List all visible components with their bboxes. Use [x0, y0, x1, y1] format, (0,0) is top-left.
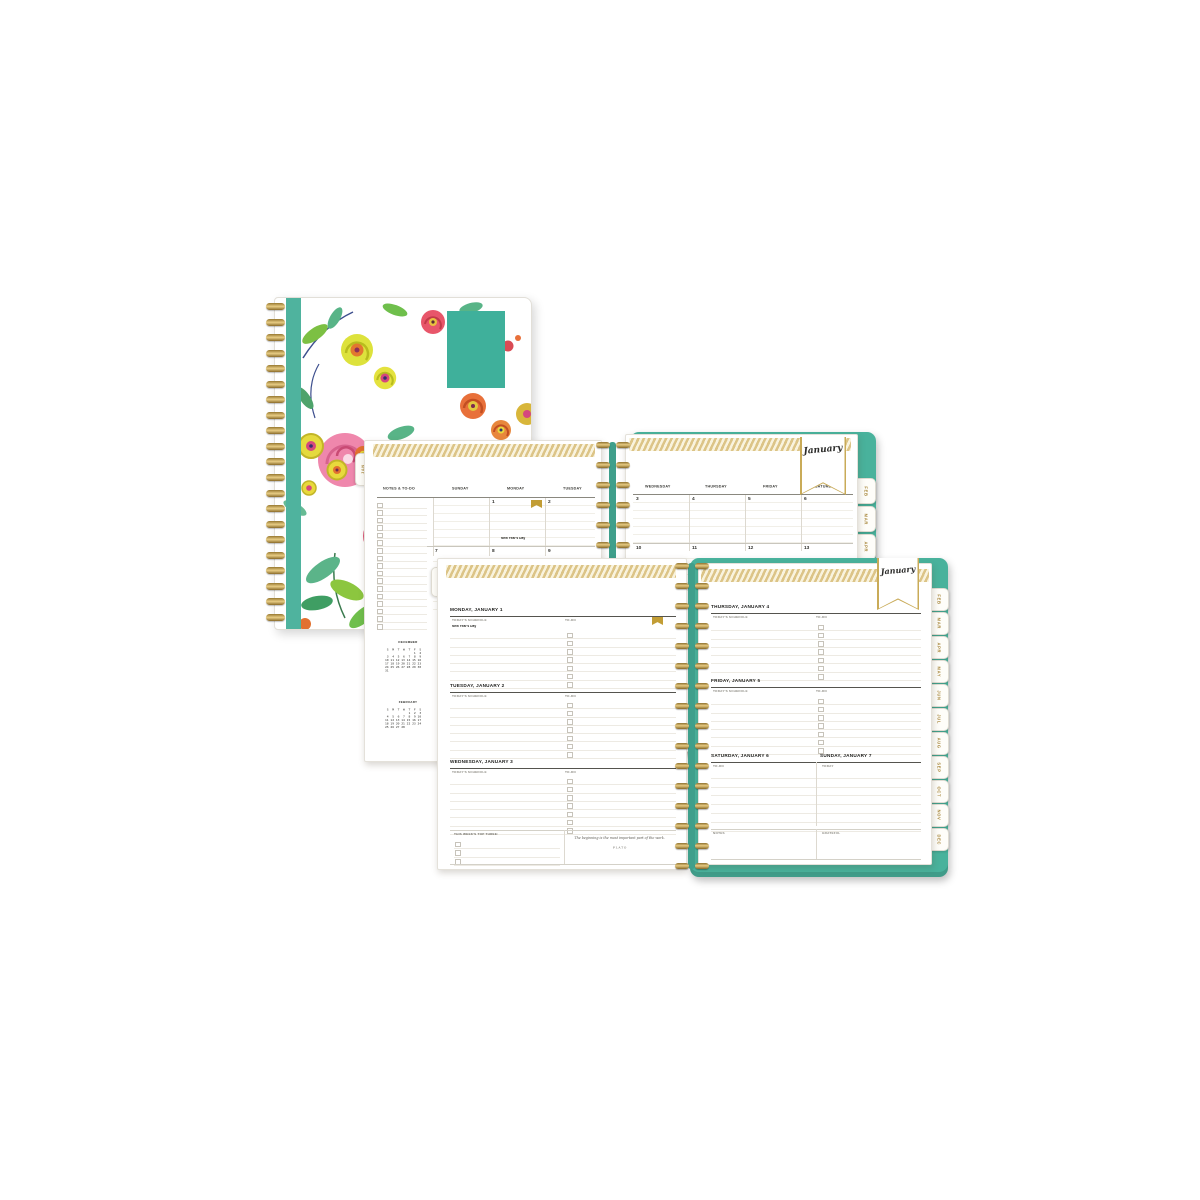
- todo-checkbox-row: [450, 631, 676, 639]
- todo-checkbox-row: [711, 738, 921, 746]
- todo-checkbox-row: [711, 697, 921, 705]
- schedule-label: TODAY'S SCHEDULE: [713, 690, 748, 693]
- date-cell: 3: [636, 497, 639, 502]
- todo-checkbox-row: [450, 818, 676, 826]
- mini-calendar-title: FEBRUARY: [385, 701, 431, 704]
- cover-spiral-binding: [264, 303, 286, 621]
- spiral-coil: [675, 743, 709, 749]
- todo-checkbox-row: [711, 664, 921, 672]
- quote-author: PLATO: [568, 846, 672, 850]
- todo-label: TO-DO: [816, 690, 827, 693]
- todo-checkbox-row: [454, 840, 560, 849]
- day-rule: [450, 616, 676, 617]
- todo-checkbox-row: [377, 592, 427, 600]
- todo-checkbox-row: [450, 639, 676, 647]
- spiral-coil: [675, 803, 709, 809]
- todo-checkbox-row: [711, 730, 921, 738]
- grid-line: [545, 498, 546, 556]
- todo-checkbox-row: [711, 623, 921, 631]
- spiral-coil: [596, 462, 630, 468]
- grid-line: [489, 498, 490, 556]
- todo-checkbox-row: [377, 607, 427, 615]
- todo-checkbox-row: [450, 701, 676, 709]
- todo-checkbox-row: [450, 742, 676, 750]
- day-title-saturday: SATURDAY, JANUARY 6: [711, 754, 769, 759]
- spiral-ring: [266, 552, 285, 559]
- spiral-ring: [266, 396, 285, 403]
- spiral-ring: [266, 381, 285, 388]
- month-tab-label: MAY: [935, 666, 939, 677]
- date-cell: 6: [804, 497, 807, 502]
- day-title-tuesday: TUESDAY, JANUARY 2: [450, 684, 505, 689]
- day-rows: [711, 623, 921, 681]
- todo-checkbox-row: [377, 585, 427, 593]
- day-rows: [450, 701, 676, 759]
- spiral-coil: [596, 482, 630, 488]
- holiday-label: New Year's Day: [501, 537, 525, 540]
- todo-checkbox-row: [711, 656, 921, 664]
- todo-checkbox-row: [450, 709, 676, 717]
- mini-calendar-title: DECEMBER: [385, 641, 431, 644]
- spiral-ring: [266, 427, 285, 434]
- month-tab-label: FEB: [935, 594, 939, 604]
- todo-checkbox-row: [711, 714, 921, 722]
- column-header-friday: FRIDAY: [763, 485, 778, 489]
- spiral-coil: [675, 723, 709, 729]
- day-rule: [450, 768, 676, 769]
- spiral-coil: [675, 663, 709, 669]
- notes-label: NOTES: [713, 832, 725, 835]
- todo-checkbox-row: [377, 516, 427, 524]
- quote-block: The beginning is the most important part…: [568, 836, 672, 853]
- month-tab-label: AUG: [935, 738, 939, 749]
- date-cell: 4: [692, 497, 695, 502]
- month-tab-label: FEB: [862, 486, 866, 496]
- todo-checkbox-row: [377, 539, 427, 547]
- notes-divider: [816, 829, 817, 859]
- column-header-wednesday: WEDNESDAY: [645, 485, 671, 489]
- spiral-coil: [675, 563, 709, 569]
- todo-checkbox-row: [377, 600, 427, 608]
- spiral-coil: [675, 783, 709, 789]
- grid-line: [633, 543, 853, 544]
- month-tab-label: APR: [862, 542, 866, 553]
- spiral-ring: [266, 536, 285, 543]
- day-title-friday: FRIDAY, JANUARY 5: [711, 679, 760, 684]
- todo-checkbox-row: [450, 810, 676, 818]
- todo-checkbox-row: [377, 509, 427, 517]
- todo-checkbox-row: [377, 615, 427, 623]
- day-title-sunday: SUNDAY, JANUARY 7: [820, 754, 872, 759]
- todo-checkbox-row: [450, 794, 676, 802]
- schedule-label: TODAY'S SCHEDULE: [452, 771, 487, 774]
- spiral-ring: [266, 598, 285, 605]
- todo-checkbox-row: [377, 547, 427, 555]
- weekly-right-page: THURSDAY, JANUARY 4 TODAY'S SCHEDULE TO-…: [698, 563, 932, 865]
- month-tab-label: OCT: [935, 786, 939, 797]
- todo-checkbox-row: [450, 648, 676, 656]
- todo-checkbox-row: [711, 722, 921, 730]
- todo-checkbox-row: [377, 569, 427, 577]
- schedule-label: TODAY'S SCHEDULE: [452, 619, 487, 622]
- spiral-ring: [266, 614, 285, 621]
- sunday-today-label: TODAY: [822, 765, 834, 768]
- column-header-tuesday: TUESDAY: [563, 487, 582, 491]
- spiral-coil: [596, 502, 630, 508]
- column-header-thursday: THURSDAY: [705, 485, 727, 489]
- todo-checkbox-row: [450, 664, 676, 672]
- calendar-cells: [633, 495, 853, 543]
- todo-checkbox-row: [377, 623, 427, 631]
- todo-label: TO-DO: [816, 616, 827, 619]
- top-three-label: THIS WEEK'S TOP THREE:: [454, 833, 498, 836]
- spiral-ring: [266, 443, 285, 450]
- spiral-ring: [266, 458, 285, 465]
- cover-teal-rectangle: [447, 311, 505, 388]
- section-line: [450, 864, 676, 865]
- holiday-flag-icon: [652, 617, 663, 625]
- saturday-todo-label: TO-DO: [713, 765, 724, 768]
- todo-checkbox-row: [711, 705, 921, 713]
- holiday-note: New Year's Day: [452, 625, 476, 628]
- weekend-divider: [816, 762, 817, 826]
- month-tab-label: DEC: [935, 834, 939, 845]
- day-title-monday: MONDAY, JANUARY 1: [450, 608, 503, 613]
- todo-label: TO-DO: [565, 771, 576, 774]
- todo-checkbox-row: [450, 718, 676, 726]
- gold-stripe-banner: [373, 444, 595, 457]
- grateful-label: GRATEFUL: [822, 832, 840, 835]
- weekly-left-page: MONDAY, JANUARY 1 TODAY'S SCHEDULE TO-DO…: [437, 558, 687, 870]
- month-tab-label: MAR: [862, 513, 866, 524]
- product-photo-planner-set: FEB MAR APR MAY JAN WEDNESDAY THURSDAY F…: [0, 0, 1200, 1200]
- weekly-spread: FEB MAR APR MAY JUN JUL AUG SEP OCT NOV …: [432, 555, 952, 881]
- todo-checkbox-row: [450, 726, 676, 734]
- day-rows: [450, 631, 676, 689]
- cover-teal-spine-strip: [286, 298, 301, 629]
- quote-text: The beginning is the most important part…: [569, 836, 672, 840]
- column-header-sunday: SUNDAY: [452, 487, 468, 491]
- todo-label: TO-DO: [565, 619, 576, 622]
- spiral-coil: [675, 683, 709, 689]
- date-cell: 5: [748, 497, 751, 502]
- spiral-coil: [675, 843, 709, 849]
- spiral-ring: [266, 319, 285, 326]
- spiral-ring: [266, 350, 285, 357]
- todo-checkbox-row: [450, 656, 676, 664]
- month-tab-label: JUN: [935, 690, 939, 700]
- spiral-ring: [266, 412, 285, 419]
- todo-checkbox-row: [711, 631, 921, 639]
- todo-checkbox-row: [377, 501, 427, 509]
- spiral-coil: [596, 442, 630, 448]
- todo-label: TO-DO: [565, 695, 576, 698]
- spiral-ring: [266, 474, 285, 481]
- spiral-coil: [675, 763, 709, 769]
- month-tab-label: JUL: [935, 715, 939, 725]
- todo-checkbox-row: [377, 562, 427, 570]
- date-cell: 2: [548, 500, 551, 505]
- todo-checkbox-row: [711, 648, 921, 656]
- day-rows: [711, 697, 921, 755]
- section-line: [450, 830, 676, 831]
- spiral-coil: [596, 522, 630, 528]
- spiral-coil: [675, 823, 709, 829]
- section-line: [711, 859, 921, 860]
- month-tab-label: MAR: [935, 618, 939, 629]
- day-rule: [711, 687, 921, 688]
- month-tab-label: NOV: [935, 810, 939, 821]
- todo-checkbox-row: [450, 672, 676, 680]
- day-title-wednesday: WEDNESDAY, JANUARY 3: [450, 760, 513, 765]
- mini-calendar-grid: S M T W T F S 1 2 3 4 5 6 7 8 9 10 11 12…: [385, 648, 431, 673]
- weekly-spiral-binding: [675, 563, 709, 869]
- spiral-coil: [675, 623, 709, 629]
- grid-line: [433, 498, 434, 556]
- todo-checkbox-row: [454, 858, 560, 867]
- day-rule: [711, 613, 921, 614]
- spiral-coil: [675, 603, 709, 609]
- column-header-notes: NOTES & TO-DO: [383, 487, 415, 491]
- todo-checkbox-row: [377, 554, 427, 562]
- column-header-monday: MONDAY: [507, 487, 524, 491]
- spiral-coil: [675, 583, 709, 589]
- todo-checkbox-row: [450, 802, 676, 810]
- todo-checkbox-row: [377, 531, 427, 539]
- notes-todo-list: [377, 501, 427, 630]
- spiral-ring: [266, 567, 285, 574]
- day-rows: [450, 777, 676, 835]
- day-rule: [450, 692, 676, 693]
- todo-checkbox-row: [450, 734, 676, 742]
- spiral-ring: [266, 490, 285, 497]
- todo-checkbox-row: [377, 577, 427, 585]
- todo-checkbox-row: [450, 777, 676, 785]
- todo-checkbox-row: [711, 640, 921, 648]
- schedule-label: TODAY'S SCHEDULE: [713, 616, 748, 619]
- month-tab-label: SEP: [935, 762, 939, 772]
- spiral-ring: [266, 334, 285, 341]
- spiral-ring: [266, 505, 285, 512]
- spiral-coil: [596, 542, 630, 548]
- top-three-rows: [454, 840, 560, 866]
- todo-checkbox-row: [450, 785, 676, 793]
- quote-divider: [564, 830, 565, 864]
- spiral-coil: [675, 863, 709, 869]
- date-cell: 1: [492, 500, 495, 505]
- spiral-ring: [266, 303, 285, 310]
- spiral-ring: [266, 583, 285, 590]
- month-tab-label: APR: [935, 642, 939, 653]
- spiral-coil: [675, 703, 709, 709]
- gold-stripe-banner: [446, 565, 676, 578]
- spiral-coil: [675, 643, 709, 649]
- spiral-ring: [266, 521, 285, 528]
- day-title-thursday: THURSDAY, JANUARY 4: [711, 605, 769, 610]
- todo-checkbox-row: [450, 751, 676, 759]
- mini-calendar-grid: S M T W T F S 1 2 3 4 5 6 7 8 9 10 11 12…: [385, 708, 431, 729]
- schedule-label: TODAY'S SCHEDULE: [452, 695, 487, 698]
- todo-checkbox-row: [454, 849, 560, 858]
- todo-checkbox-row: [377, 524, 427, 532]
- spiral-ring: [266, 365, 285, 372]
